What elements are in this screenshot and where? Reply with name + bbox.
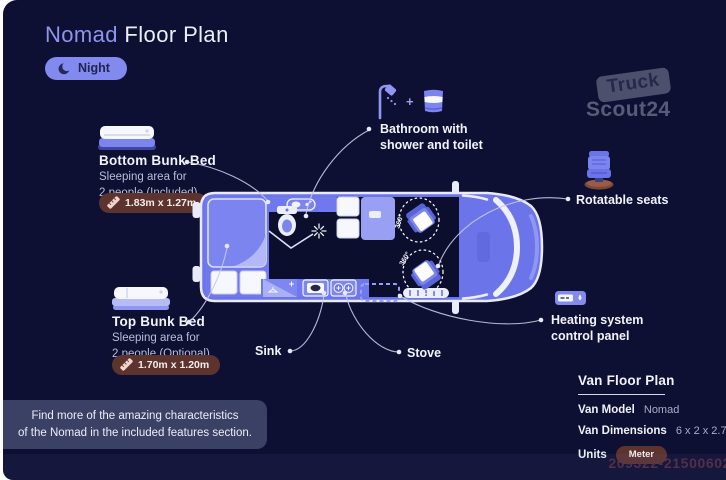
spec-panel: Van Floor Plan Van Model Nomad Van Dimen… (578, 373, 726, 464)
bottom-bunk-bed-icon (95, 123, 159, 153)
page-title-brand: Nomad (45, 22, 118, 47)
moon-icon (58, 62, 71, 75)
bottom-bunk-title: Bottom Bunk Bed (99, 153, 216, 168)
photo-frame: Nomad Floor Plan Night Truck Scout24 Bot… (0, 0, 726, 480)
page-title-rest: Floor Plan (118, 22, 229, 47)
shower-icon (375, 82, 399, 120)
bathroom-label: Bathroom with shower and toilet (380, 121, 483, 153)
toilet-icon (421, 88, 446, 114)
truckscout-logo-bottom: Scout24 (586, 98, 671, 122)
ruler-icon (120, 358, 133, 371)
pillow (211, 271, 237, 294)
spec-heading: Van Floor Plan (578, 373, 726, 388)
plus-icon: + (406, 94, 414, 109)
rotatable-seats-label: Rotatable seats (576, 193, 668, 207)
dinette-table (361, 197, 395, 240)
van-floorplan-illustration: 360° 360° (191, 180, 546, 315)
top-bunk-bed-icon (109, 282, 173, 312)
sink-label: Sink (255, 344, 281, 358)
bathroom-icons: + (375, 82, 446, 120)
night-mode-toggle[interactable]: Night (45, 57, 127, 80)
features-note: Find more of the amazing characteristics… (3, 400, 267, 449)
ruler-icon (107, 196, 120, 209)
dashboard (477, 232, 490, 262)
page-title: Nomad Floor Plan (45, 22, 229, 48)
spec-row-dimensions: Van Dimensions 6 x 2 x 2.75 m (578, 425, 726, 437)
top-bunk-dimensions-badge: 1.70m x 1.20m (112, 355, 220, 375)
spec-row-model: Van Model Nomad (578, 404, 726, 416)
rotatable-seat-icon (581, 150, 617, 191)
floorplan-canvas: Nomad Floor Plan Night Truck Scout24 Bot… (3, 0, 726, 480)
night-mode-label: Night (78, 61, 110, 75)
heating-label: Heating system control panel (551, 312, 643, 344)
spec-divider (578, 394, 665, 395)
dinette-seat (337, 219, 359, 238)
bottom-band (3, 454, 726, 480)
stove-label: Stove (407, 346, 441, 360)
dinette-seat (337, 197, 359, 216)
truckscout-logo-top: Truck (606, 69, 661, 97)
top-bunk-title: Top Bunk Bed (112, 314, 205, 329)
heating-panel-icon (555, 291, 586, 305)
